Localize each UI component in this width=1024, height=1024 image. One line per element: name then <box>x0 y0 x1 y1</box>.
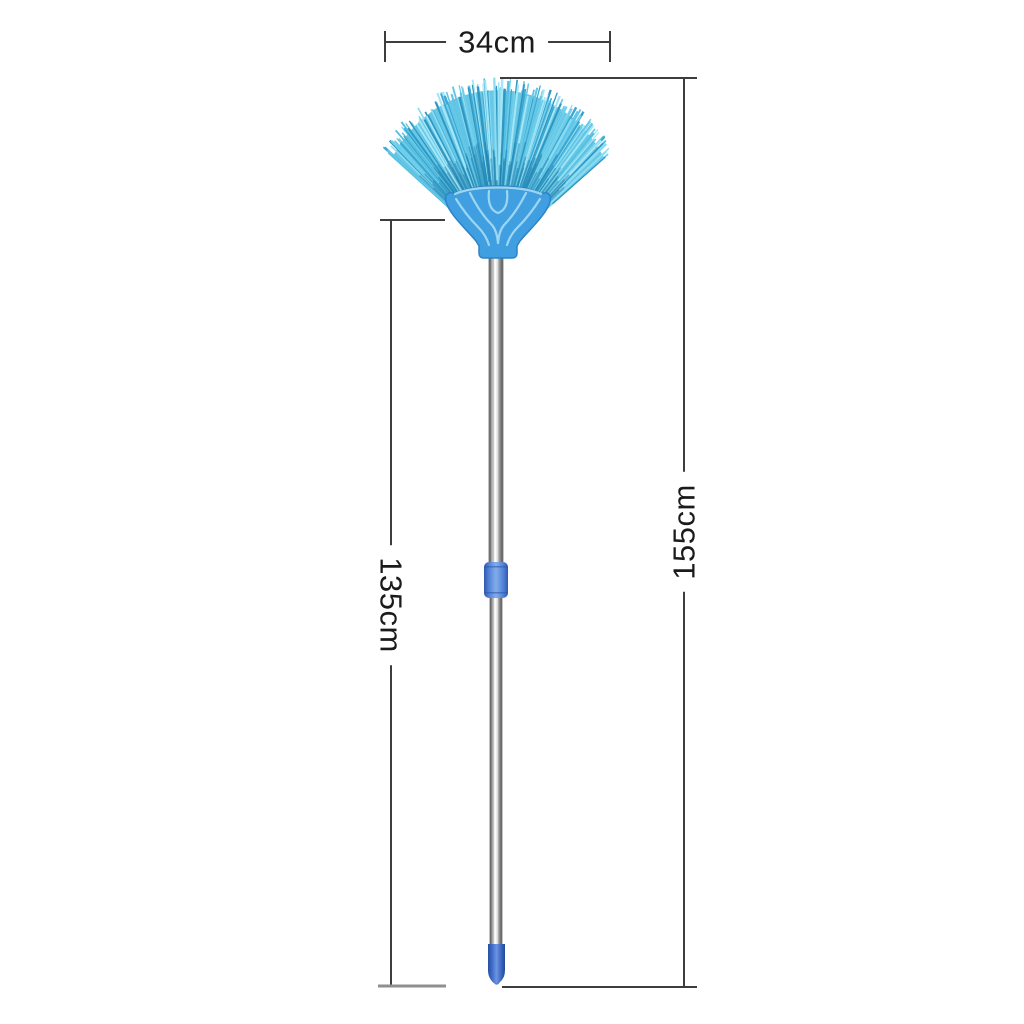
collar-ridge <box>484 566 508 568</box>
collar-ridge <box>484 592 508 594</box>
broom-pole-lower <box>490 580 503 946</box>
total-height-dimension-label: 155cm <box>666 472 703 592</box>
width-dimension-label: 34cm <box>446 24 548 61</box>
broom <box>383 78 609 985</box>
diagram-canvas <box>0 0 1024 1024</box>
broom-pole-upper <box>489 250 504 580</box>
handle-height-dimension-label: 135cm <box>373 545 410 665</box>
broom-tip-cap <box>488 944 505 985</box>
broom-head <box>446 186 551 258</box>
product-dimension-diagram: 34cm 155cm 135cm <box>0 0 1024 1024</box>
